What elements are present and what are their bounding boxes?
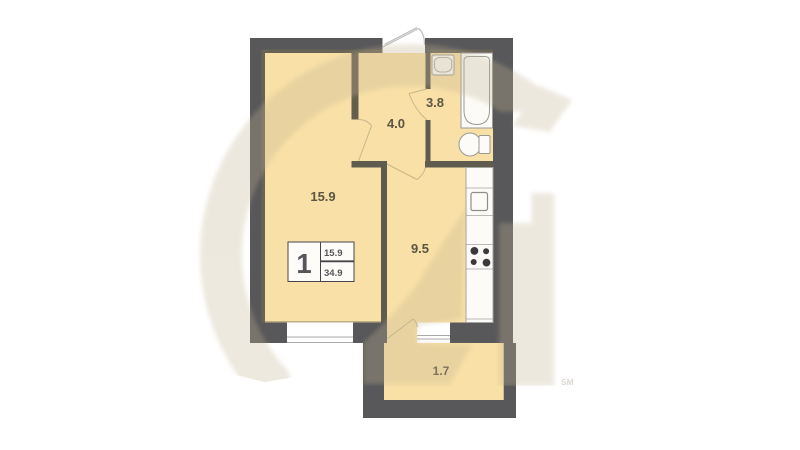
svg-text:15.9: 15.9 xyxy=(324,248,343,259)
svg-text:3.8: 3.8 xyxy=(426,95,444,110)
svg-text:9.5: 9.5 xyxy=(411,241,429,256)
svg-text:34.9: 34.9 xyxy=(324,268,343,279)
svg-text:SM: SM xyxy=(561,377,574,387)
svg-text:15.9: 15.9 xyxy=(310,189,335,204)
svg-text:4.0: 4.0 xyxy=(387,116,405,131)
svg-text:1: 1 xyxy=(296,248,311,279)
